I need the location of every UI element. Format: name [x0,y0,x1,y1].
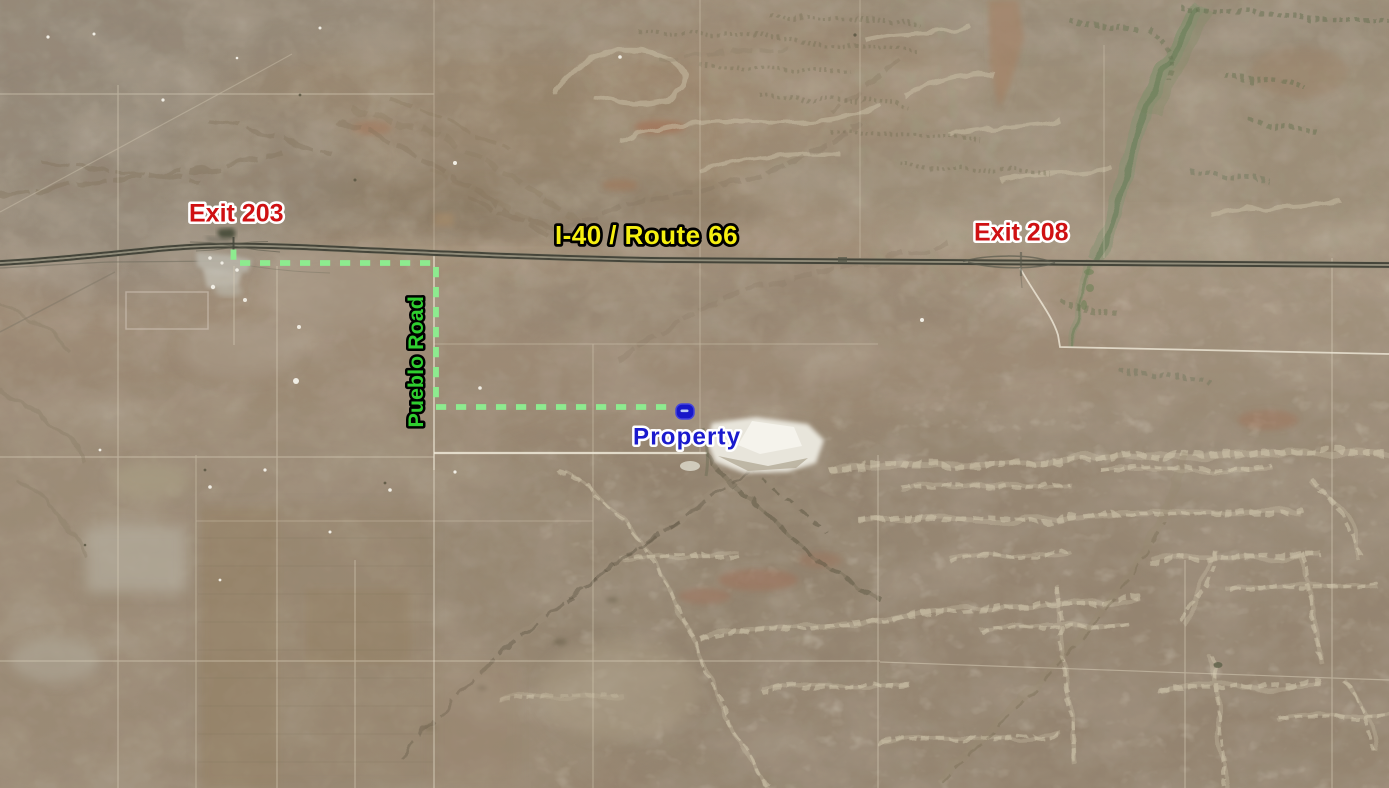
svg-text:Pueblo Road: Pueblo Road [404,296,428,427]
svg-text:Exit 203: Exit 203 [189,200,284,228]
svg-text:Property: Property [633,424,741,451]
svg-text:I-40 / Route 66: I-40 / Route 66 [555,220,738,250]
svg-text:Exit 208: Exit 208 [974,219,1069,247]
